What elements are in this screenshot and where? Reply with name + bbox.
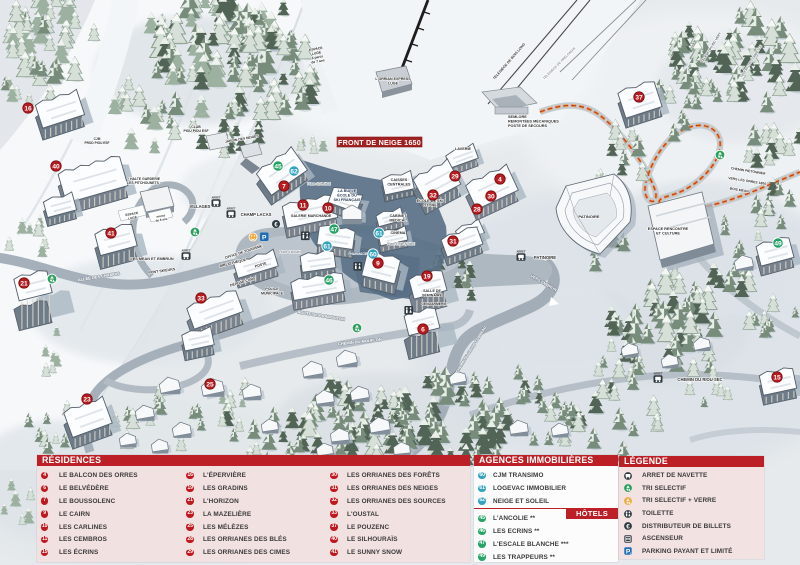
svg-text:9: 9 bbox=[376, 260, 380, 267]
svg-text:Place du festival: Place du festival bbox=[307, 182, 331, 186]
svg-text:OZONE: OZONE bbox=[423, 204, 437, 208]
svg-text:PROD PIOU ESF: PROD PIOU ESF bbox=[85, 141, 110, 145]
svg-text:ESPACE RENCONTRE: ESPACE RENCONTRE bbox=[648, 227, 689, 231]
svg-text:47: 47 bbox=[330, 226, 338, 233]
svg-text:LAVERIE: LAVERIE bbox=[455, 147, 472, 151]
svg-text:CHEMIN DU RIOU SEC: CHEMIN DU RIOU SEC bbox=[677, 377, 722, 382]
svg-text:45: 45 bbox=[274, 163, 282, 170]
svg-text:30: 30 bbox=[487, 193, 495, 200]
svg-text:ARRET: ARRET bbox=[517, 249, 526, 253]
svg-text:33: 33 bbox=[197, 295, 205, 302]
svg-text:L'ORRIAN EXPRESS: L'ORRIAN EXPRESS bbox=[375, 77, 411, 81]
svg-text:19: 19 bbox=[423, 273, 431, 280]
svg-text:ARRET: ARRET bbox=[654, 371, 663, 375]
svg-text:VILLAGES: VILLAGES bbox=[190, 204, 211, 209]
svg-text:32: 32 bbox=[429, 192, 437, 199]
svg-text:ET CULTURE: ET CULTURE bbox=[656, 232, 680, 236]
svg-text:SÉMINAIRE: SÉMINAIRE bbox=[422, 292, 443, 297]
svg-text:ARRET: ARRET bbox=[182, 248, 191, 252]
svg-text:62: 62 bbox=[290, 168, 298, 175]
svg-text:LUGE: LUGE bbox=[388, 81, 399, 85]
svg-text:Place Émile Nodeul: Place Émile Nodeul bbox=[387, 241, 415, 246]
svg-text:LES PITCHOUNETS ›: LES PITCHOUNETS › bbox=[127, 181, 161, 185]
svg-text:31: 31 bbox=[449, 238, 457, 245]
svg-text:CAISSES: CAISSES bbox=[391, 178, 408, 182]
svg-text:SALLE DE: SALLE DE bbox=[423, 289, 441, 293]
svg-text:FRONT DE NEIGE 1650: FRONT DE NEIGE 1650 bbox=[338, 138, 421, 147]
svg-text:€: € bbox=[627, 523, 631, 530]
svg-text:Place d'accueil: Place d'accueil bbox=[279, 250, 300, 254]
svg-text:REMONTÉES MÉCANIQUES: REMONTÉES MÉCANIQUES bbox=[508, 119, 559, 124]
svg-text:25: 25 bbox=[206, 381, 214, 388]
svg-text:LES MEAN ET EMBRUN: LES MEAN ET EMBRUN bbox=[130, 257, 174, 261]
svg-text:MÉDICAL: MÉDICAL bbox=[389, 218, 407, 223]
svg-text:ARRET: ARRET bbox=[212, 195, 221, 199]
svg-text:GENDARMERIE: GENDARMERIE bbox=[421, 302, 447, 306]
svg-text:40: 40 bbox=[52, 163, 60, 170]
svg-text:60: 60 bbox=[369, 251, 377, 258]
svg-text:ÉCOLE DU: ÉCOLE DU bbox=[337, 193, 357, 198]
svg-text:CINÉMA: CINÉMA bbox=[391, 230, 406, 235]
svg-text:46: 46 bbox=[325, 277, 333, 284]
svg-text:10: 10 bbox=[324, 205, 332, 212]
svg-text:11: 11 bbox=[300, 202, 307, 209]
svg-text:PATINOIRE: PATINOIRE bbox=[534, 255, 556, 260]
svg-text:28: 28 bbox=[473, 206, 481, 213]
svg-text:15: 15 bbox=[773, 374, 781, 381]
svg-text:CABINET: CABINET bbox=[390, 214, 408, 218]
svg-text:CENTRALES: CENTRALES bbox=[387, 183, 411, 187]
svg-text:16: 16 bbox=[24, 105, 32, 112]
svg-text:37: 37 bbox=[635, 94, 643, 101]
svg-text:41: 41 bbox=[107, 230, 115, 237]
svg-text:PIOU PIOU ESF: PIOU PIOU ESF bbox=[183, 129, 208, 133]
svg-text:MUNICIPALE: MUNICIPALE bbox=[261, 291, 284, 295]
svg-text:21: 21 bbox=[20, 280, 28, 287]
svg-text:PHARMACIE: PHARMACIE bbox=[348, 252, 367, 256]
svg-text:SEMLORE: SEMLORE bbox=[508, 115, 527, 119]
svg-text:61: 61 bbox=[375, 230, 383, 237]
svg-text:POLICE: POLICE bbox=[265, 287, 279, 291]
svg-text:PATINOIRE: PATINOIRE bbox=[578, 214, 600, 219]
svg-text:7: 7 bbox=[282, 183, 286, 190]
svg-text:4: 4 bbox=[498, 176, 502, 183]
svg-text:LA BULLE: LA BULLE bbox=[338, 189, 357, 193]
svg-text:GALERIE MARCHANDE: GALERIE MARCHANDE bbox=[291, 214, 332, 218]
svg-text:SKI FRANÇAIS: SKI FRANÇAIS bbox=[333, 198, 360, 202]
svg-text:49: 49 bbox=[774, 240, 782, 247]
svg-text:CHAMP LACAS: CHAMP LACAS bbox=[241, 212, 272, 217]
svg-text:23: 23 bbox=[83, 396, 91, 403]
svg-text:29: 29 bbox=[451, 173, 459, 180]
svg-text:ARRET: ARRET bbox=[227, 206, 236, 210]
svg-text:P: P bbox=[262, 234, 267, 241]
svg-text:6: 6 bbox=[421, 326, 425, 333]
svg-text:POSTE DE SECOURS: POSTE DE SECOURS bbox=[508, 124, 547, 128]
svg-text:61: 61 bbox=[323, 243, 331, 250]
